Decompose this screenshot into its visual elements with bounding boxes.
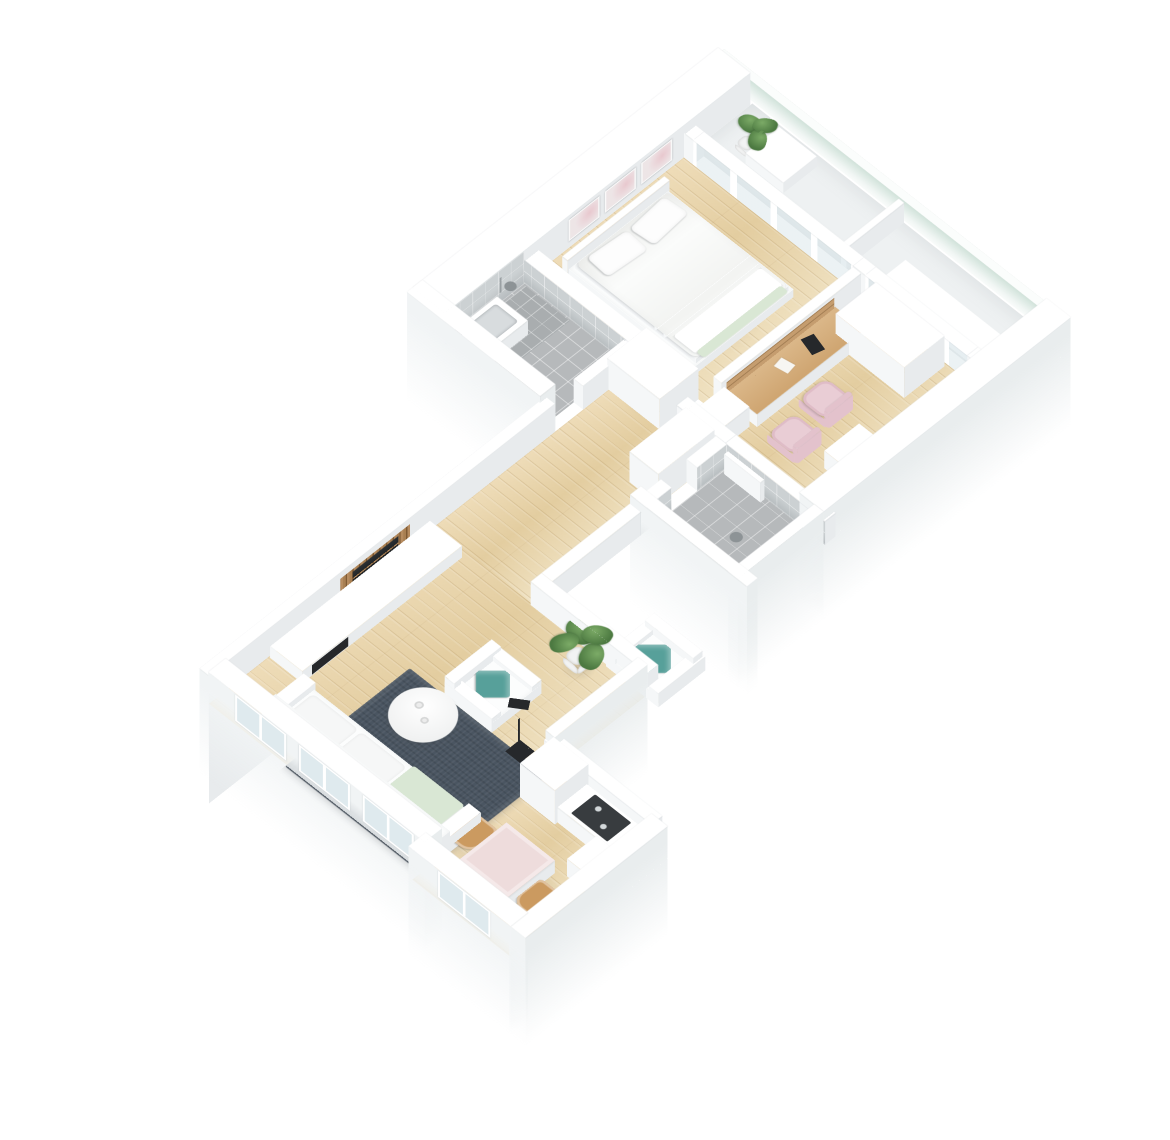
teal-pillow-2 bbox=[476, 671, 510, 698]
shower-room-south-wall-side-x bbox=[747, 578, 758, 719]
floorplan-render: 3D isometric floor plan render of a one-… bbox=[40, 16, 1170, 1124]
kitchen-east-facade-side-y bbox=[509, 925, 525, 1070]
shower-pipe bbox=[500, 277, 502, 294]
floor-lamp-pole bbox=[518, 718, 520, 752]
shower-room-door-panel-side-x bbox=[760, 479, 764, 502]
